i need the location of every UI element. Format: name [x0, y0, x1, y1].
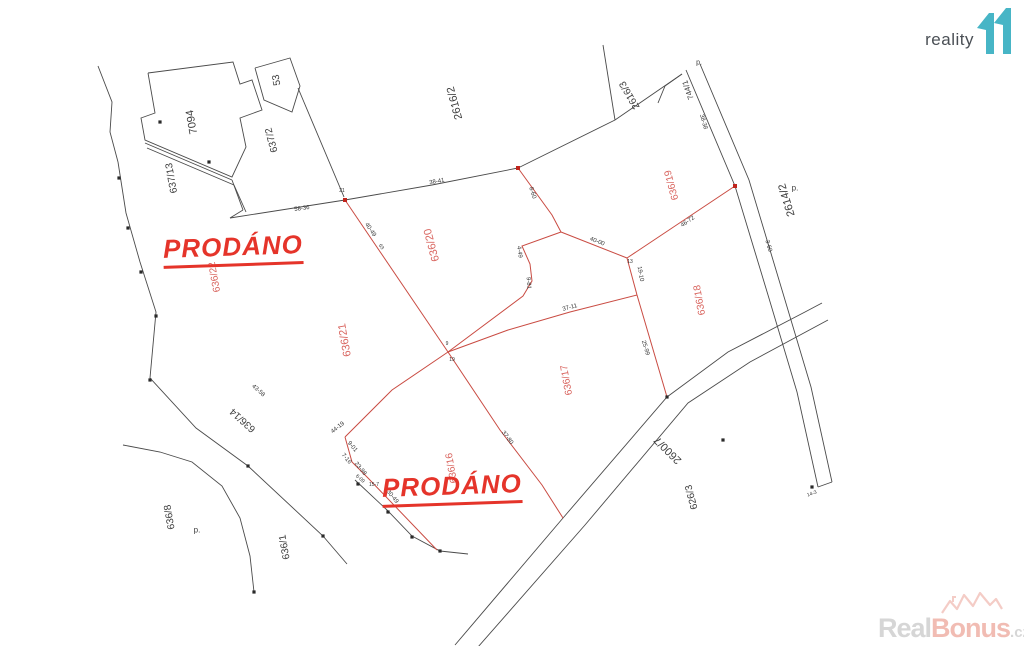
boundary-line [145, 143, 232, 180]
boundary-line [478, 320, 828, 646]
boundary-line [255, 58, 300, 112]
survey-point [733, 184, 737, 188]
boundary-line [518, 74, 682, 168]
reality11-logo-text: reality [925, 31, 974, 48]
boundary-line [234, 185, 246, 212]
survey-point [207, 160, 210, 163]
survey-point [117, 176, 120, 179]
boundary-line [686, 70, 818, 487]
boundary-line [298, 88, 344, 197]
boundary-line [627, 186, 735, 258]
boundary-line [448, 232, 561, 352]
survey-point [438, 549, 441, 552]
survey-point [158, 120, 161, 123]
boundary-line [603, 45, 615, 120]
boundary-line [141, 62, 262, 177]
watermark-real: Real [878, 613, 931, 643]
reality11-logo: reality [925, 8, 1014, 56]
survey-point [516, 166, 520, 170]
survey-point [343, 198, 347, 202]
boundary-line [627, 258, 637, 295]
houses-icon [940, 589, 1004, 615]
boundary-line [818, 482, 832, 487]
boundary-line [345, 352, 448, 437]
survey-point [665, 395, 668, 398]
survey-point [356, 482, 359, 485]
boundary-line [232, 180, 243, 210]
watermark-bonus: Bonus [931, 613, 1010, 643]
boundary-line [123, 445, 254, 592]
survey-point [246, 464, 249, 467]
boundary-line [518, 168, 561, 232]
boundary-line [448, 295, 637, 352]
boundary-line [147, 148, 234, 185]
survey-point [321, 534, 324, 537]
survey-point [252, 590, 255, 593]
prodano-sold-label-1: PRODÁNO [162, 229, 303, 269]
survey-point [126, 226, 129, 229]
cadastral-map-page: 709453637/2637/132616/22616/3744/12614/2… [0, 0, 1024, 646]
survey-point [386, 510, 389, 513]
boundary-line [345, 200, 448, 352]
boundary-line [230, 168, 518, 218]
reality11-logo-icon [976, 8, 1014, 56]
survey-point [721, 438, 724, 441]
boundary-line [118, 162, 347, 564]
survey-point [810, 485, 813, 488]
survey-point [148, 378, 151, 381]
realbonus-watermark: RealBonus.cz [878, 589, 1018, 642]
survey-point [154, 314, 157, 317]
boundary-line [98, 66, 118, 162]
cadastral-map [0, 0, 1024, 646]
boundary-line [637, 295, 667, 397]
survey-point [410, 535, 413, 538]
boundary-line [700, 64, 832, 482]
survey-point [139, 270, 142, 273]
prodano-sold-label-2: PRODÁNO [381, 468, 522, 508]
boundary-line [561, 232, 627, 258]
watermark-cz: .cz [1010, 624, 1024, 641]
